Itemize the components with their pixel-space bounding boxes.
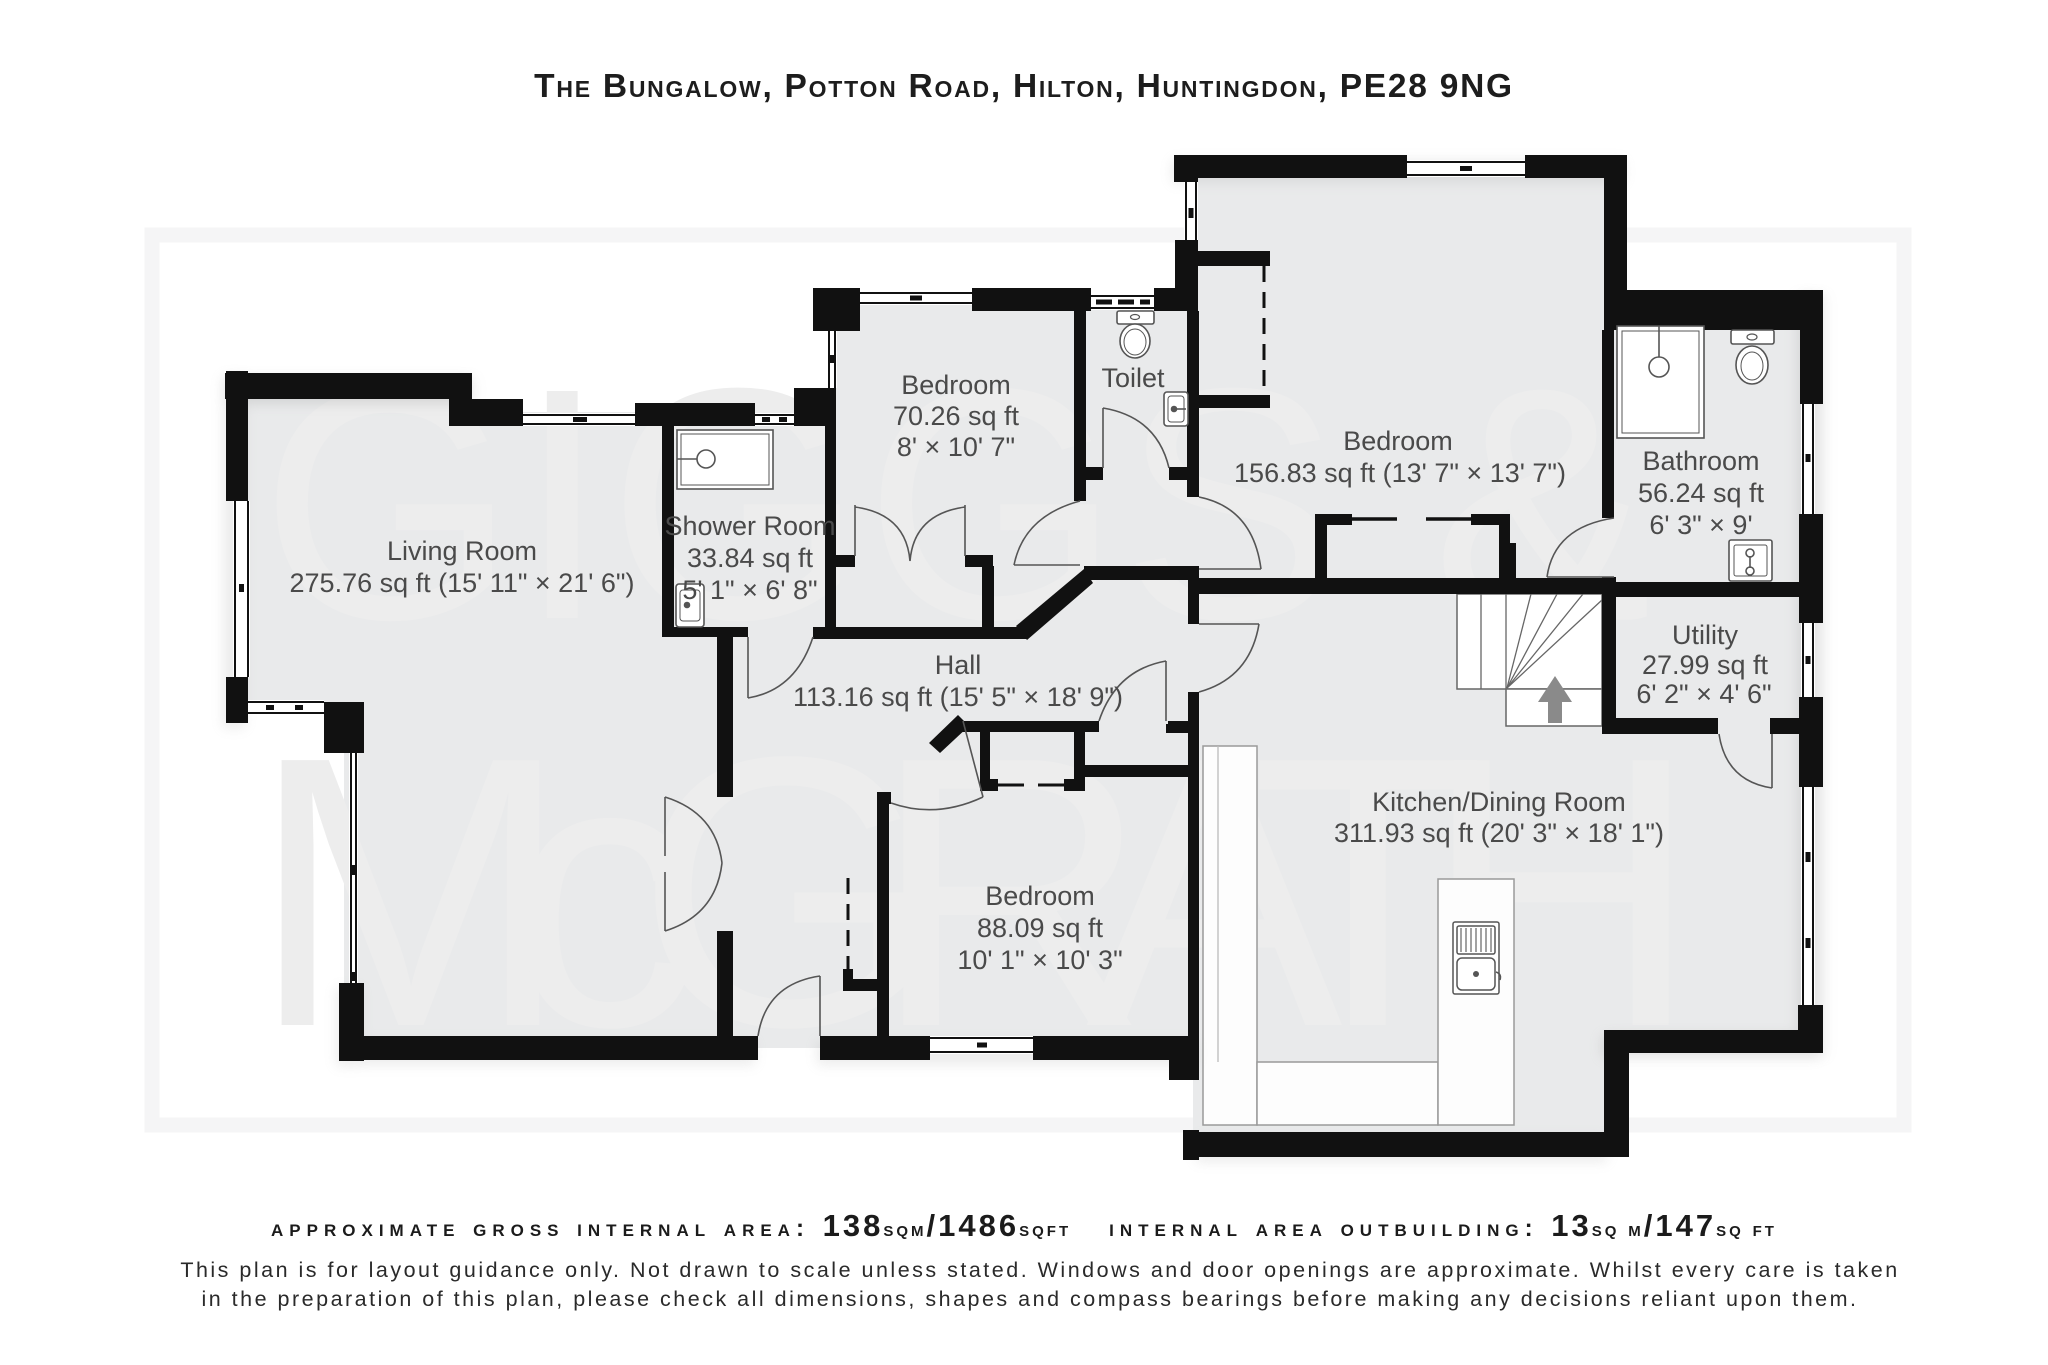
svg-text:88.09 sq ft: 88.09 sq ft [977,913,1104,943]
svg-text:33.84 sq ft: 33.84 sq ft [687,543,814,573]
svg-text:275.76 sq ft (15' 11" × 21' 6": 275.76 sq ft (15' 11" × 21' 6") [290,568,635,598]
svg-text:Bedroom: Bedroom [985,881,1095,911]
svg-text:This plan is for layout guidan: This plan is for layout guidance only. N… [180,1258,1899,1282]
svg-text:113.16 sq ft (15' 5" × 18' 9"): 113.16 sq ft (15' 5" × 18' 9") [793,682,1123,712]
svg-text:Bedroom: Bedroom [901,370,1011,400]
svg-text:Shower Room: Shower Room [664,511,835,541]
svg-text:6' 2" × 4' 6": 6' 2" × 4' 6" [1636,679,1771,709]
svg-text:Kitchen/Dining Room: Kitchen/Dining Room [1372,787,1626,817]
svg-text:56.24 sq ft: 56.24 sq ft [1638,478,1765,508]
svg-text:8' × 10' 7": 8' × 10' 7" [897,432,1015,462]
svg-text:5' 1" × 6' 8": 5' 1" × 6' 8" [682,575,817,605]
svg-text:156.83 sq ft (13' 7" × 13' 7"): 156.83 sq ft (13' 7" × 13' 7") [1234,458,1566,488]
svg-text:Living Room: Living Room [387,536,537,566]
svg-text:70.26 sq ft: 70.26 sq ft [893,401,1020,431]
svg-text:Utility: Utility [1672,620,1738,650]
svg-text:Bedroom: Bedroom [1343,426,1453,456]
svg-text:in the preparation of this pla: in the preparation of this plan, please … [201,1287,1858,1311]
svg-text:The Bungalow, Potton Road, Hil: The Bungalow, Potton Road, Hilton, Hunti… [534,68,1514,105]
svg-text:Toilet: Toilet [1101,363,1165,393]
svg-text:Hall: Hall [935,650,982,680]
svg-text:Bathroom: Bathroom [1642,446,1759,476]
svg-text:311.93 sq ft (20' 3" × 18' 1"): 311.93 sq ft (20' 3" × 18' 1") [1334,818,1664,848]
svg-text:10' 1" × 10' 3": 10' 1" × 10' 3" [957,945,1122,975]
svg-text:6' 3" × 9': 6' 3" × 9' [1649,510,1752,540]
svg-text:27.99 sq ft: 27.99 sq ft [1642,650,1769,680]
